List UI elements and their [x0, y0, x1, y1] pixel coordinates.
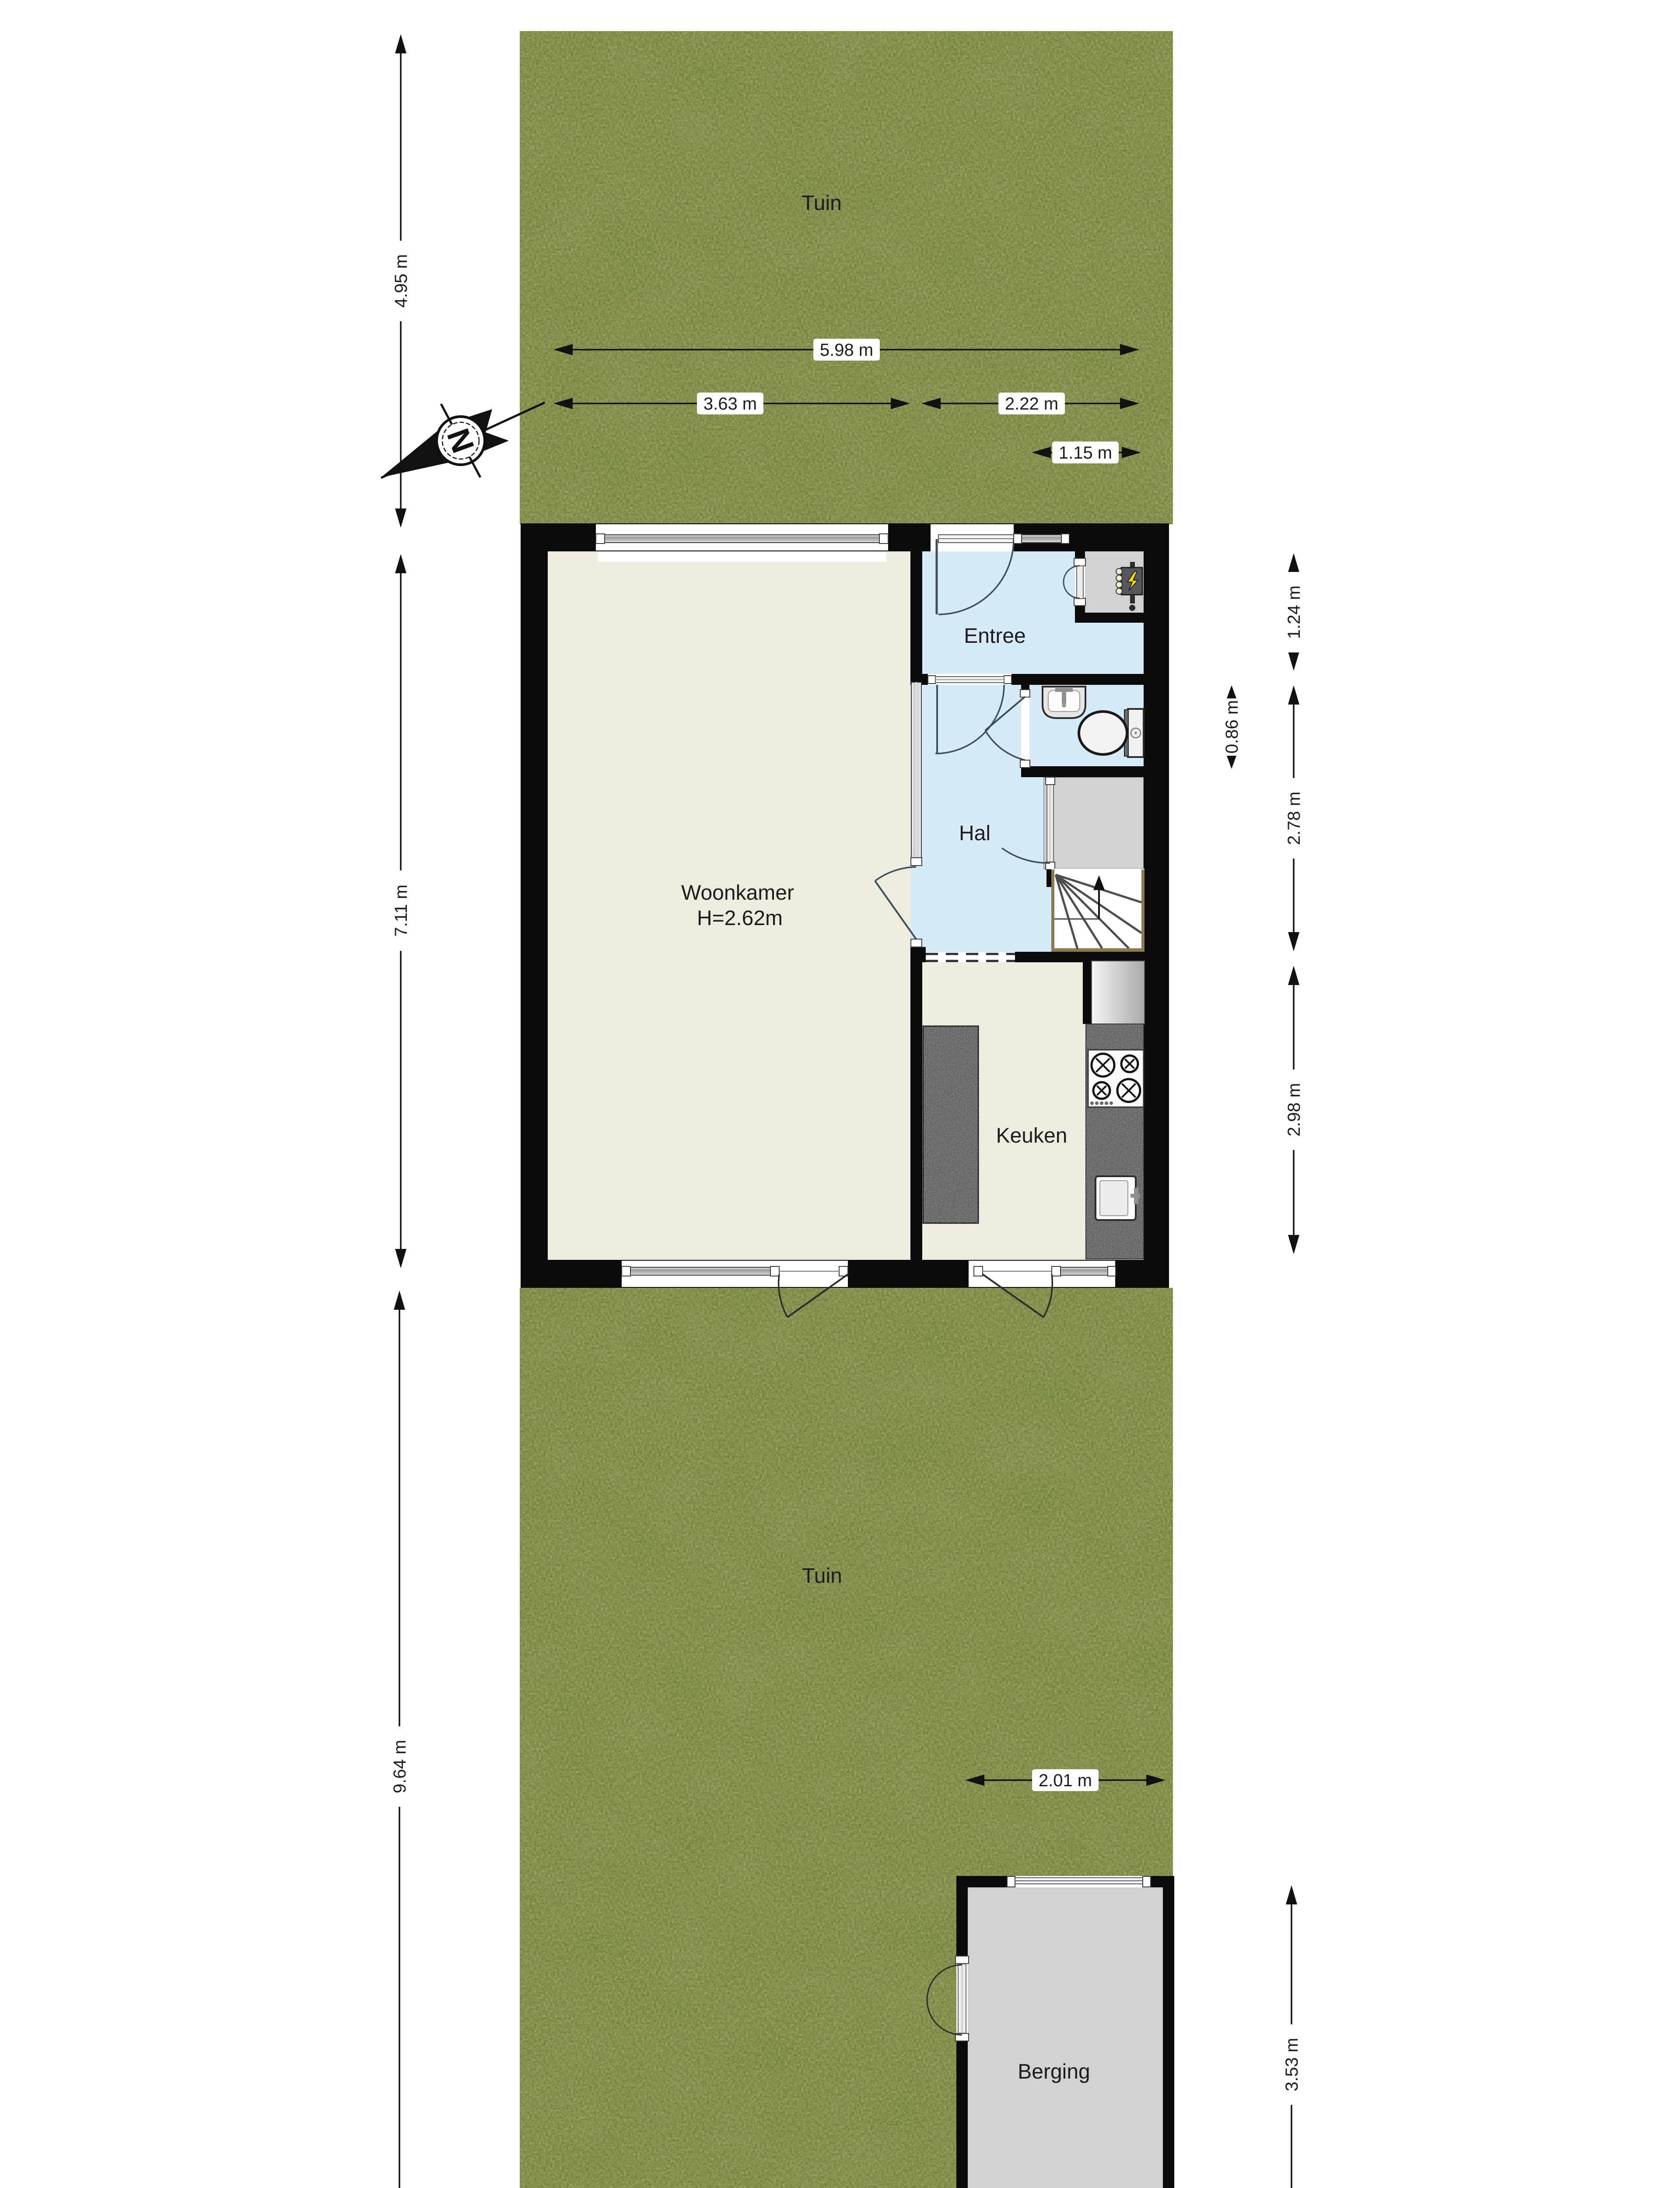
svg-text:5.98 m: 5.98 m — [820, 340, 873, 360]
svg-text:Berging: Berging — [1018, 2060, 1090, 2083]
svg-text:3.53 m: 3.53 m — [1282, 2038, 1302, 2091]
svg-text:Woonkamer: Woonkamer — [681, 881, 794, 905]
svg-text:1.15 m: 1.15 m — [1059, 443, 1112, 463]
svg-text:1.24 m: 1.24 m — [1284, 586, 1304, 639]
svg-text:7.11 m: 7.11 m — [392, 884, 411, 936]
svg-text:Entree: Entree — [964, 624, 1025, 648]
svg-text:Keuken: Keuken — [996, 1124, 1067, 1147]
svg-text:9.64 m: 9.64 m — [390, 1740, 409, 1793]
svg-text:2.22 m: 2.22 m — [1005, 394, 1058, 414]
svg-text:2.98 m: 2.98 m — [1284, 1083, 1304, 1136]
svg-text:H=2.62m: H=2.62m — [697, 907, 783, 930]
svg-text:3.63 m: 3.63 m — [703, 394, 757, 414]
svg-text:Hal: Hal — [959, 822, 990, 845]
svg-text:Tuin: Tuin — [801, 192, 842, 215]
svg-text:2.78 m: 2.78 m — [1284, 792, 1304, 845]
svg-text:0.86 m: 0.86 m — [1222, 700, 1242, 754]
svg-text:2.01 m: 2.01 m — [1039, 1771, 1092, 1790]
svg-text:4.95 m: 4.95 m — [392, 254, 411, 308]
svg-text:Tuin: Tuin — [802, 1564, 842, 1588]
